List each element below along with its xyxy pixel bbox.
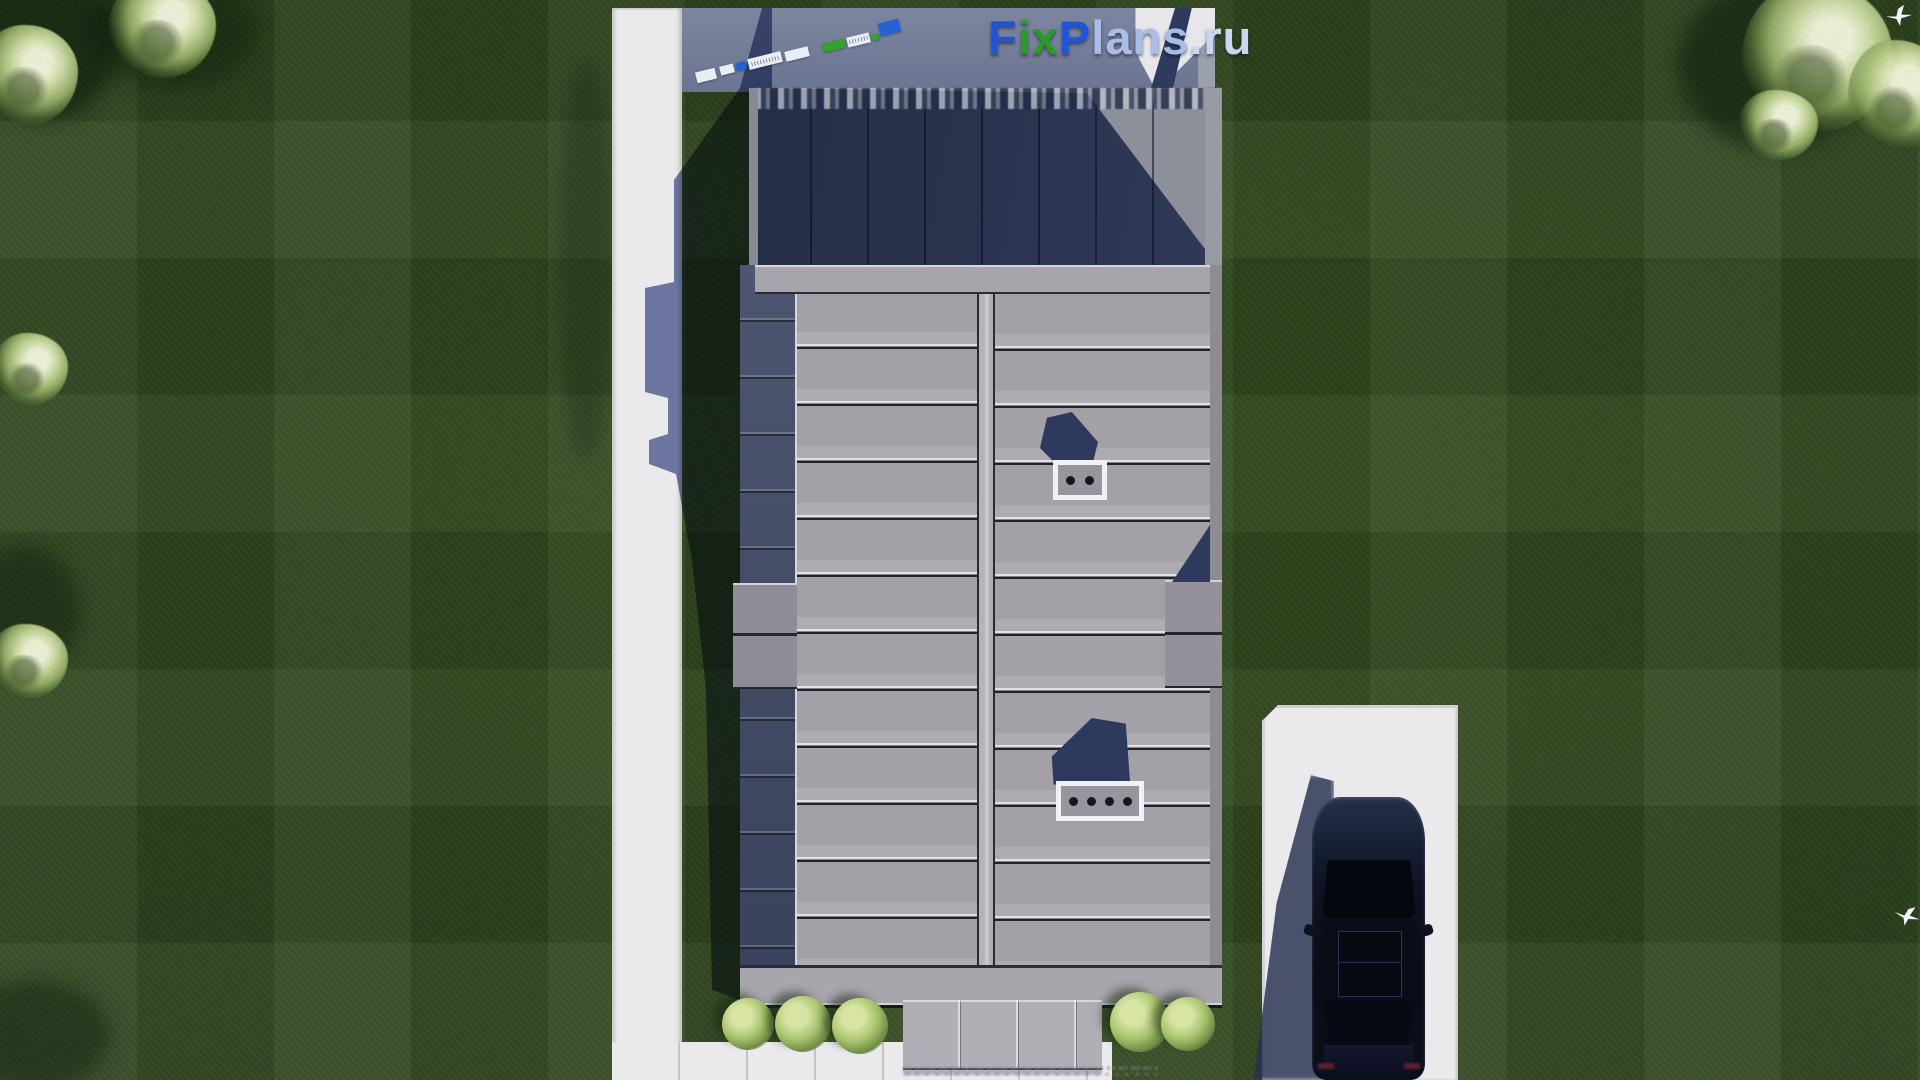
scale-segment	[719, 63, 735, 75]
brand-watermark: FixPlans.ru	[988, 10, 1252, 65]
garden-path	[612, 8, 682, 1080]
watermark-letter: P	[1059, 11, 1091, 64]
car-sunroof	[1338, 931, 1402, 997]
sunroof-split	[1339, 962, 1401, 963]
bush	[832, 998, 888, 1054]
car-rear-window	[1323, 1000, 1415, 1045]
flat-roof-section	[755, 88, 1222, 265]
vent-hole	[1066, 476, 1075, 485]
watermark-letter: lans	[1091, 11, 1189, 64]
bumpout-split	[733, 633, 797, 636]
flat-roof-left-edge	[749, 88, 758, 265]
flat-roof-seams	[755, 102, 1222, 265]
scale-segment	[747, 51, 783, 70]
chimney-vent-4	[1056, 781, 1144, 821]
flat-roof-right-edge	[1205, 88, 1222, 265]
bumpout-split	[1165, 632, 1222, 635]
roof-bumpout-right	[1165, 580, 1222, 688]
vent-hole	[1069, 797, 1078, 806]
scale-strip	[693, 18, 913, 88]
vent-hole	[1087, 797, 1096, 806]
main-roof	[740, 265, 1222, 1008]
bush	[722, 998, 774, 1050]
bush	[1161, 997, 1215, 1051]
vent-hole	[1123, 797, 1132, 806]
scale-segment	[871, 33, 879, 41]
car-taillight-right	[1404, 1063, 1420, 1069]
bush	[775, 996, 831, 1052]
car-windshield	[1322, 860, 1416, 918]
roof-top-eave-band	[755, 265, 1222, 294]
car-trunk	[1324, 1045, 1414, 1075]
scale-segment	[695, 68, 717, 84]
porch-canopy	[903, 1000, 1102, 1070]
vent-hole	[1085, 476, 1094, 485]
scale-segment	[784, 46, 810, 62]
scale-segment	[878, 19, 902, 37]
aerial-render: FixPlans.ru	[0, 0, 1920, 1080]
faint-watermark-text	[903, 1065, 1158, 1078]
roof-ridge-band	[977, 265, 995, 1005]
scale-segment	[822, 38, 846, 52]
car	[1310, 785, 1428, 1080]
parapet-texture	[755, 88, 1222, 109]
car-taillight-left	[1318, 1063, 1334, 1069]
roof-bumpout-left	[733, 583, 797, 689]
roof-panels-left	[795, 292, 979, 1005]
watermark-letter: F	[988, 11, 1018, 64]
scale-segment	[846, 32, 871, 47]
watermark-letter: .ru	[1189, 11, 1252, 64]
chimney-vent-2	[1053, 460, 1107, 500]
scale-segment	[735, 61, 747, 71]
vent-hole	[1105, 797, 1114, 806]
watermark-letter: ix	[1018, 11, 1059, 64]
